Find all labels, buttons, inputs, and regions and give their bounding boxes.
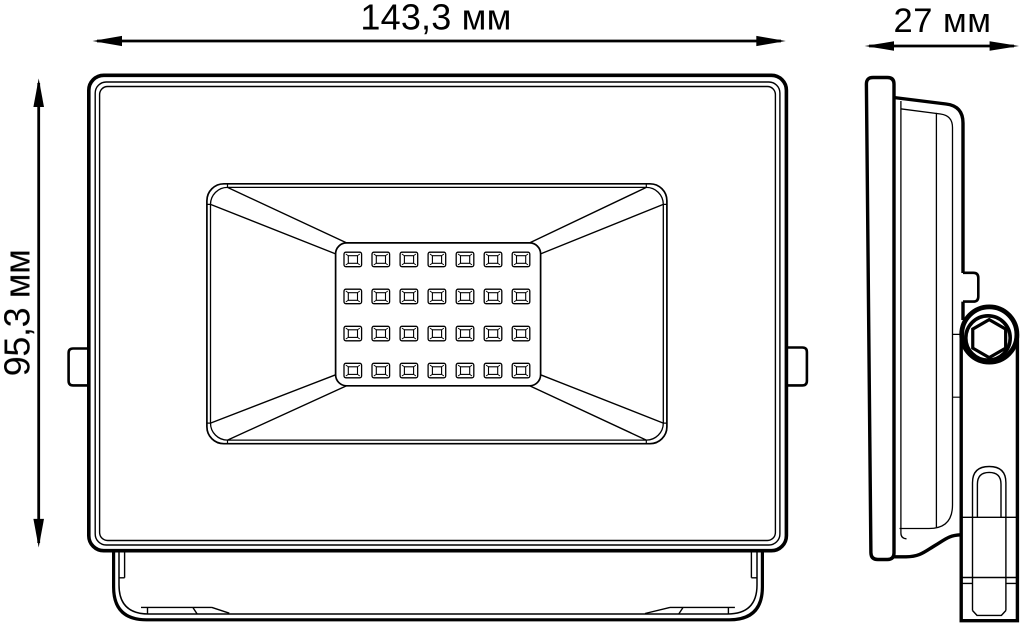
svg-text:143,3 мм: 143,3 мм: [360, 0, 511, 38]
svg-text:27 мм: 27 мм: [894, 2, 992, 40]
svg-text:95,3 мм: 95,3 мм: [0, 250, 38, 377]
